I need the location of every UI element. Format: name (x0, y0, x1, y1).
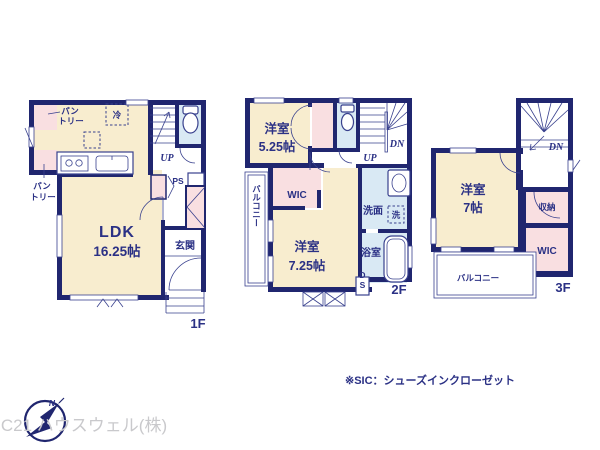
label-ldk: LDK (99, 224, 135, 241)
door-arc-entrance (169, 258, 201, 290)
window-2f-top (254, 98, 284, 103)
label-room-b-size: 7.25帖 (289, 258, 326, 273)
label-up-2f: UP (363, 153, 377, 164)
floor-plan-3f: 洋室 7帖 収納 WIC バルコニー DN 3F (431, 98, 580, 298)
bathtub-icon (384, 236, 408, 282)
label-ps: PS (172, 176, 184, 186)
entrance-steps (166, 292, 204, 313)
floorplan-page: パン トリー パン トリー 冷 UP PS LDK 16.25帖 玄関 1F (0, 0, 600, 450)
sic-note: ※SIC：シューズインクローゼット (345, 373, 515, 387)
label-wic-2f: WIC (287, 190, 306, 201)
room-yoshitsu-725-upper (323, 168, 358, 214)
toilet-icon-1f (183, 106, 198, 133)
closet-pantry-top (33, 104, 57, 130)
window-ldk-bottom (70, 295, 138, 300)
label-room-a-size: 5.25帖 (259, 139, 296, 154)
window-3f-bottom-b (494, 247, 514, 252)
floor-plan-2f: 洋室 5.25帖 WIC バルコニー 洋室 7.25帖 洗面 洗 浴室 UP D… (245, 98, 412, 306)
sic-closet (186, 186, 205, 229)
closet-pantry-left (33, 150, 57, 171)
label-up-1f: UP (160, 153, 174, 164)
label-floor-3f: 3F (555, 280, 570, 295)
window-3f-left (431, 218, 436, 244)
door-arc-toilet-1f (180, 148, 195, 163)
closet-2f (312, 103, 335, 150)
label-room-a: 洋室 (264, 121, 290, 136)
label-ldk-size: 16.25帖 (93, 243, 141, 259)
window-3f-bottom-a (441, 247, 461, 252)
label-floor-1f: 1F (190, 316, 205, 331)
label-storage: 収納 (538, 202, 555, 212)
window-kitchen-top (126, 100, 148, 105)
window-balcony-door-a (268, 220, 273, 242)
window-x-marks (303, 292, 345, 306)
label-room-3f-size: 7帖 (463, 200, 483, 215)
label-genkan: 玄関 (175, 239, 195, 252)
label-wic-3f: WIC (537, 246, 556, 257)
label-pantry-left-2: トリー (30, 192, 56, 202)
label-dn-2f: DN (389, 139, 405, 150)
footer: ※SIC：シューズインクローゼット N C21 ハウスウェル(株) (1, 373, 515, 441)
closet-hall (151, 175, 166, 199)
label-balcony-3f: バルコニー (457, 273, 499, 283)
floorplan-drawing: パン トリー パン トリー 冷 UP PS LDK 16.25帖 玄関 1F (0, 0, 600, 450)
sink-icon (388, 170, 410, 196)
window-3f-top (450, 148, 476, 153)
ps-shaft (188, 173, 204, 187)
label-ds: DS (358, 270, 368, 290)
room-wic-2f (273, 168, 321, 208)
entrance (165, 256, 204, 313)
label-floor-2f: 2F (391, 282, 406, 297)
floor-plan-1f: パン トリー パン トリー 冷 UP PS LDK 16.25帖 玄関 1F (25, 100, 206, 331)
door-gap-3f (568, 160, 573, 172)
label-dn-3f: DN (548, 142, 564, 153)
label-pantry-top-1: パン (61, 106, 79, 116)
label-room-3f: 洋室 (460, 182, 486, 197)
label-washroom: 洗面 (363, 204, 383, 217)
window-toilet-2f (339, 98, 353, 103)
window-ldk-left (57, 215, 62, 257)
compass-north-label: N (49, 398, 56, 408)
kitchen-counter (57, 152, 133, 174)
label-washer: 洗 (392, 210, 401, 220)
label-room-b: 洋室 (294, 239, 320, 254)
label-balcony-2f: バルコニー (252, 184, 262, 227)
label-bathroom: 浴室 (361, 246, 381, 259)
label-fridge: 冷 (113, 110, 122, 120)
label-pantry-left-1: パン (33, 181, 51, 191)
door-tick-3f (573, 160, 580, 170)
window-balcony-door-b (268, 256, 273, 282)
company-name: C21 ハウスウェル(株) (1, 416, 167, 435)
stairs-1f (150, 108, 175, 144)
label-pantry-top-2: トリー (58, 116, 84, 126)
